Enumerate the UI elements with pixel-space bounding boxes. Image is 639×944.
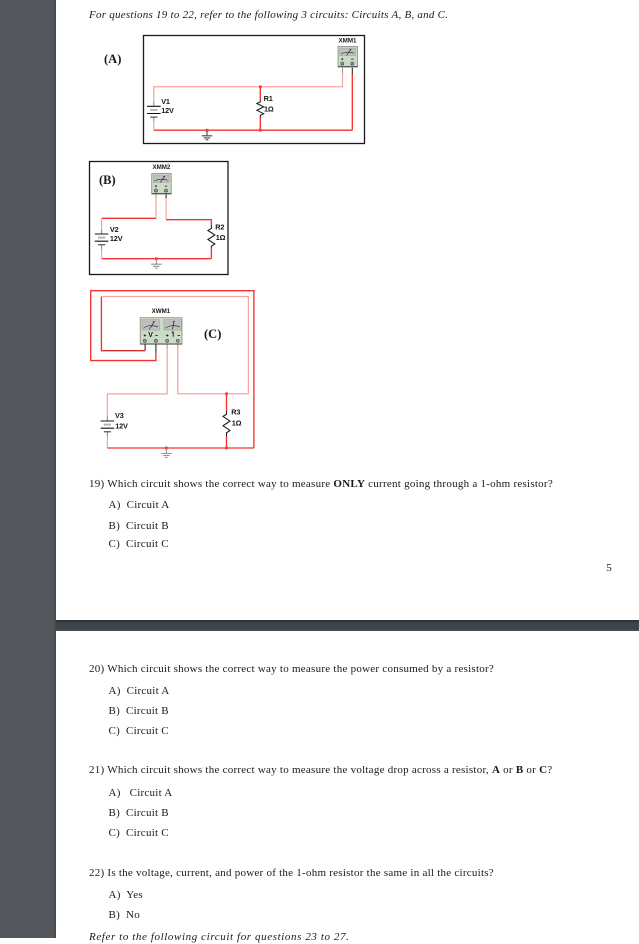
svg-text:1Ω: 1Ω <box>232 419 242 428</box>
svg-text:R2: R2 <box>215 222 224 231</box>
svg-text:R1: R1 <box>264 94 273 103</box>
svg-text:12V: 12V <box>115 422 128 431</box>
svg-text:R3: R3 <box>231 408 240 417</box>
svg-text:V1: V1 <box>161 97 170 106</box>
svg-text:XMM1: XMM1 <box>339 38 357 45</box>
svg-text:XMM2: XMM2 <box>152 164 170 171</box>
svg-text:XWM1: XWM1 <box>152 308 171 315</box>
svg-text:V3: V3 <box>115 411 124 420</box>
svg-text:V2: V2 <box>110 225 119 234</box>
svg-text:12V: 12V <box>161 106 174 115</box>
svg-text:12V: 12V <box>110 234 123 243</box>
svg-text:1Ω: 1Ω <box>216 233 226 242</box>
svg-text:1Ω: 1Ω <box>264 104 274 113</box>
